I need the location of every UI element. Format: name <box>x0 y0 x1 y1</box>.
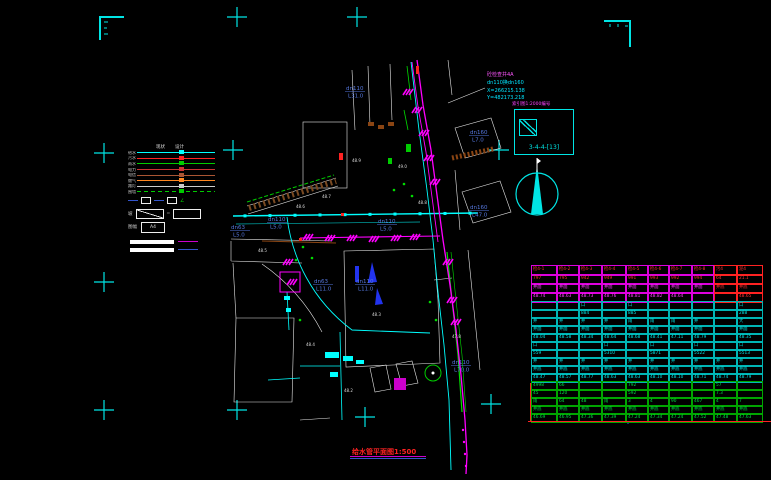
legend-well-symbol <box>179 161 184 165</box>
legend-item-line <box>137 163 215 164</box>
spot-elevation: 47.8 <box>452 334 461 339</box>
svg-text:dn63: dn63 <box>231 225 245 231</box>
legend-item-line <box>137 180 215 181</box>
legend-item-label: 给水 <box>128 151 137 155</box>
spot-elevation: 49.0 <box>398 164 407 169</box>
scale-bar <box>130 248 174 252</box>
legend-item-line <box>137 191 215 192</box>
pipe-label: dn160L47.0 <box>469 205 489 219</box>
scale-bar <box>130 240 174 244</box>
pipe-label: dn63L11.0 <box>313 279 333 293</box>
green-marker <box>388 158 392 164</box>
well-annotation-block: 砼检查井4A dn110换dn160 X=266215.138 Y=482173… <box>487 72 525 103</box>
sheet-label: 图幅 <box>128 224 137 230</box>
legend-item-label: 雨水 <box>128 162 137 166</box>
legend-item-line <box>137 186 215 187</box>
title-underline-magenta <box>350 456 426 457</box>
slope-eq: = <box>167 211 171 216</box>
slope-label: 坡 <box>128 211 133 217</box>
legend-well-symbol <box>179 150 184 154</box>
cad-drawing-viewport: dn110L31.0dn63L5.0dn110L5.0dn110L5.0dn63… <box>0 0 771 480</box>
well-schedule-table: 检4-1检4-2检4-3检4-4检4-5检4-6检4-7检4-8污4泥47977… <box>531 265 763 421</box>
frame-corner-top-left <box>100 17 124 40</box>
svg-text:L47.0: L47.0 <box>472 213 488 219</box>
pipe-label: dn110L11.0 <box>355 279 375 293</box>
scale-line-magenta <box>178 241 198 242</box>
legend-item-label: 污水 <box>128 156 137 160</box>
svg-text:dn110: dn110 <box>452 360 470 366</box>
pipe-label: dn110L70.0 <box>451 360 471 374</box>
north-arrow-icon <box>516 158 558 215</box>
legend-line-items: 给水污水雨水电力电信燃气路灯围墙 <box>128 150 228 195</box>
svg-text:dn110: dn110 <box>346 86 364 92</box>
legend-item-line <box>137 169 215 170</box>
legend-item-line <box>137 152 215 153</box>
plain-box-symbol <box>173 209 201 219</box>
title-underline-blue <box>350 458 426 459</box>
svg-text:L5.0: L5.0 <box>270 225 282 231</box>
legend-item-label: 电力 <box>128 168 137 172</box>
svg-text:L5.0: L5.0 <box>233 233 245 239</box>
svg-text:dn160: dn160 <box>470 130 488 136</box>
legend-col-existing: 现状 <box>156 144 165 150</box>
frame-corner-top-right <box>604 21 630 47</box>
legend-marker-row: ∠ <box>128 197 228 205</box>
legend-well-symbol <box>179 178 184 182</box>
svg-text:dn110: dn110 <box>268 217 286 223</box>
svg-text:L5.0: L5.0 <box>380 227 392 233</box>
legend-item-label: 燃气 <box>128 179 137 183</box>
pipe-label: dn160L7.0 <box>469 130 489 144</box>
svg-text:dn63: dn63 <box>314 279 328 285</box>
svg-text:L31.0: L31.0 <box>348 94 364 100</box>
index-hatch-square <box>519 119 537 136</box>
scale-line-blue <box>178 249 198 250</box>
legend-item-label: 路灯 <box>128 184 137 188</box>
pipe-label: dn110L5.0 <box>377 219 397 233</box>
svg-text:L11.0: L11.0 <box>358 287 374 293</box>
annotation-x-coord: X=266215.138 <box>487 88 525 96</box>
svg-text:dn160: dn160 <box>470 205 488 211</box>
legend-well-symbol <box>179 184 184 188</box>
table-left-rule <box>530 383 531 421</box>
legend-item-label: 围墙 <box>128 190 137 194</box>
sheet-size-box: A4 <box>141 222 165 233</box>
legend-item-line <box>137 175 215 176</box>
legend-item-line <box>137 158 215 159</box>
legend-well-symbol <box>179 156 184 160</box>
svg-text:L7.0: L7.0 <box>472 138 484 144</box>
legend-well-symbol <box>179 189 184 193</box>
spot-elevation: 48.9 <box>352 158 361 163</box>
legend-sheet-row: 图幅 A4 <box>128 222 228 233</box>
svg-text:L11.0: L11.0 <box>316 287 332 293</box>
tree-dots <box>295 183 438 322</box>
legend-item: 围墙 <box>128 189 228 195</box>
svg-text:dn110: dn110 <box>356 279 374 285</box>
svg-text:dn110: dn110 <box>378 219 396 225</box>
spot-elevation: 48.2 <box>344 388 353 393</box>
legend-well-symbol <box>179 167 184 171</box>
table-bottom-rule <box>528 421 771 422</box>
tree-circle-center <box>432 372 435 375</box>
legend-item-label: 电信 <box>128 173 137 177</box>
legend-well-symbol <box>179 173 184 177</box>
index-map-box: 3-4-4-[13] <box>514 109 574 155</box>
spot-elevation: 48.5 <box>258 248 267 253</box>
legend-col-design: 设计 <box>175 144 184 150</box>
legend-panel: 现状 设计 给水污水雨水电力电信燃气路灯围墙 ∠ 坡 = 图幅 A4 <box>128 144 228 260</box>
legend-slope-row: 坡 = <box>128 209 228 219</box>
svg-text:L70.0: L70.0 <box>454 368 470 374</box>
magenta-structure <box>394 378 406 390</box>
spot-elevation: 48.8 <box>418 200 427 205</box>
index-sheet-number: 3-4-4-[13] <box>515 144 573 151</box>
annotation-pipe-size: dn110换dn160 <box>487 80 525 88</box>
spot-elevation: 48.4 <box>306 342 315 347</box>
index-map-title: 索引图1:2000编号 <box>512 101 550 107</box>
legend-scale-bars <box>128 238 228 260</box>
slope-symbol <box>136 209 164 219</box>
pipe-label: dn63L5.0 <box>230 225 250 239</box>
spot-elevation: 48.7 <box>322 194 331 199</box>
cyan-structures <box>284 296 364 377</box>
green-marker <box>406 144 411 152</box>
pipe-label: dn110L31.0 <box>345 86 365 100</box>
spot-elevation: 48.6 <box>296 204 305 209</box>
annotation-well-name: 砼检查井4A <box>487 72 525 80</box>
spot-elevation: 48.3 <box>372 312 381 317</box>
